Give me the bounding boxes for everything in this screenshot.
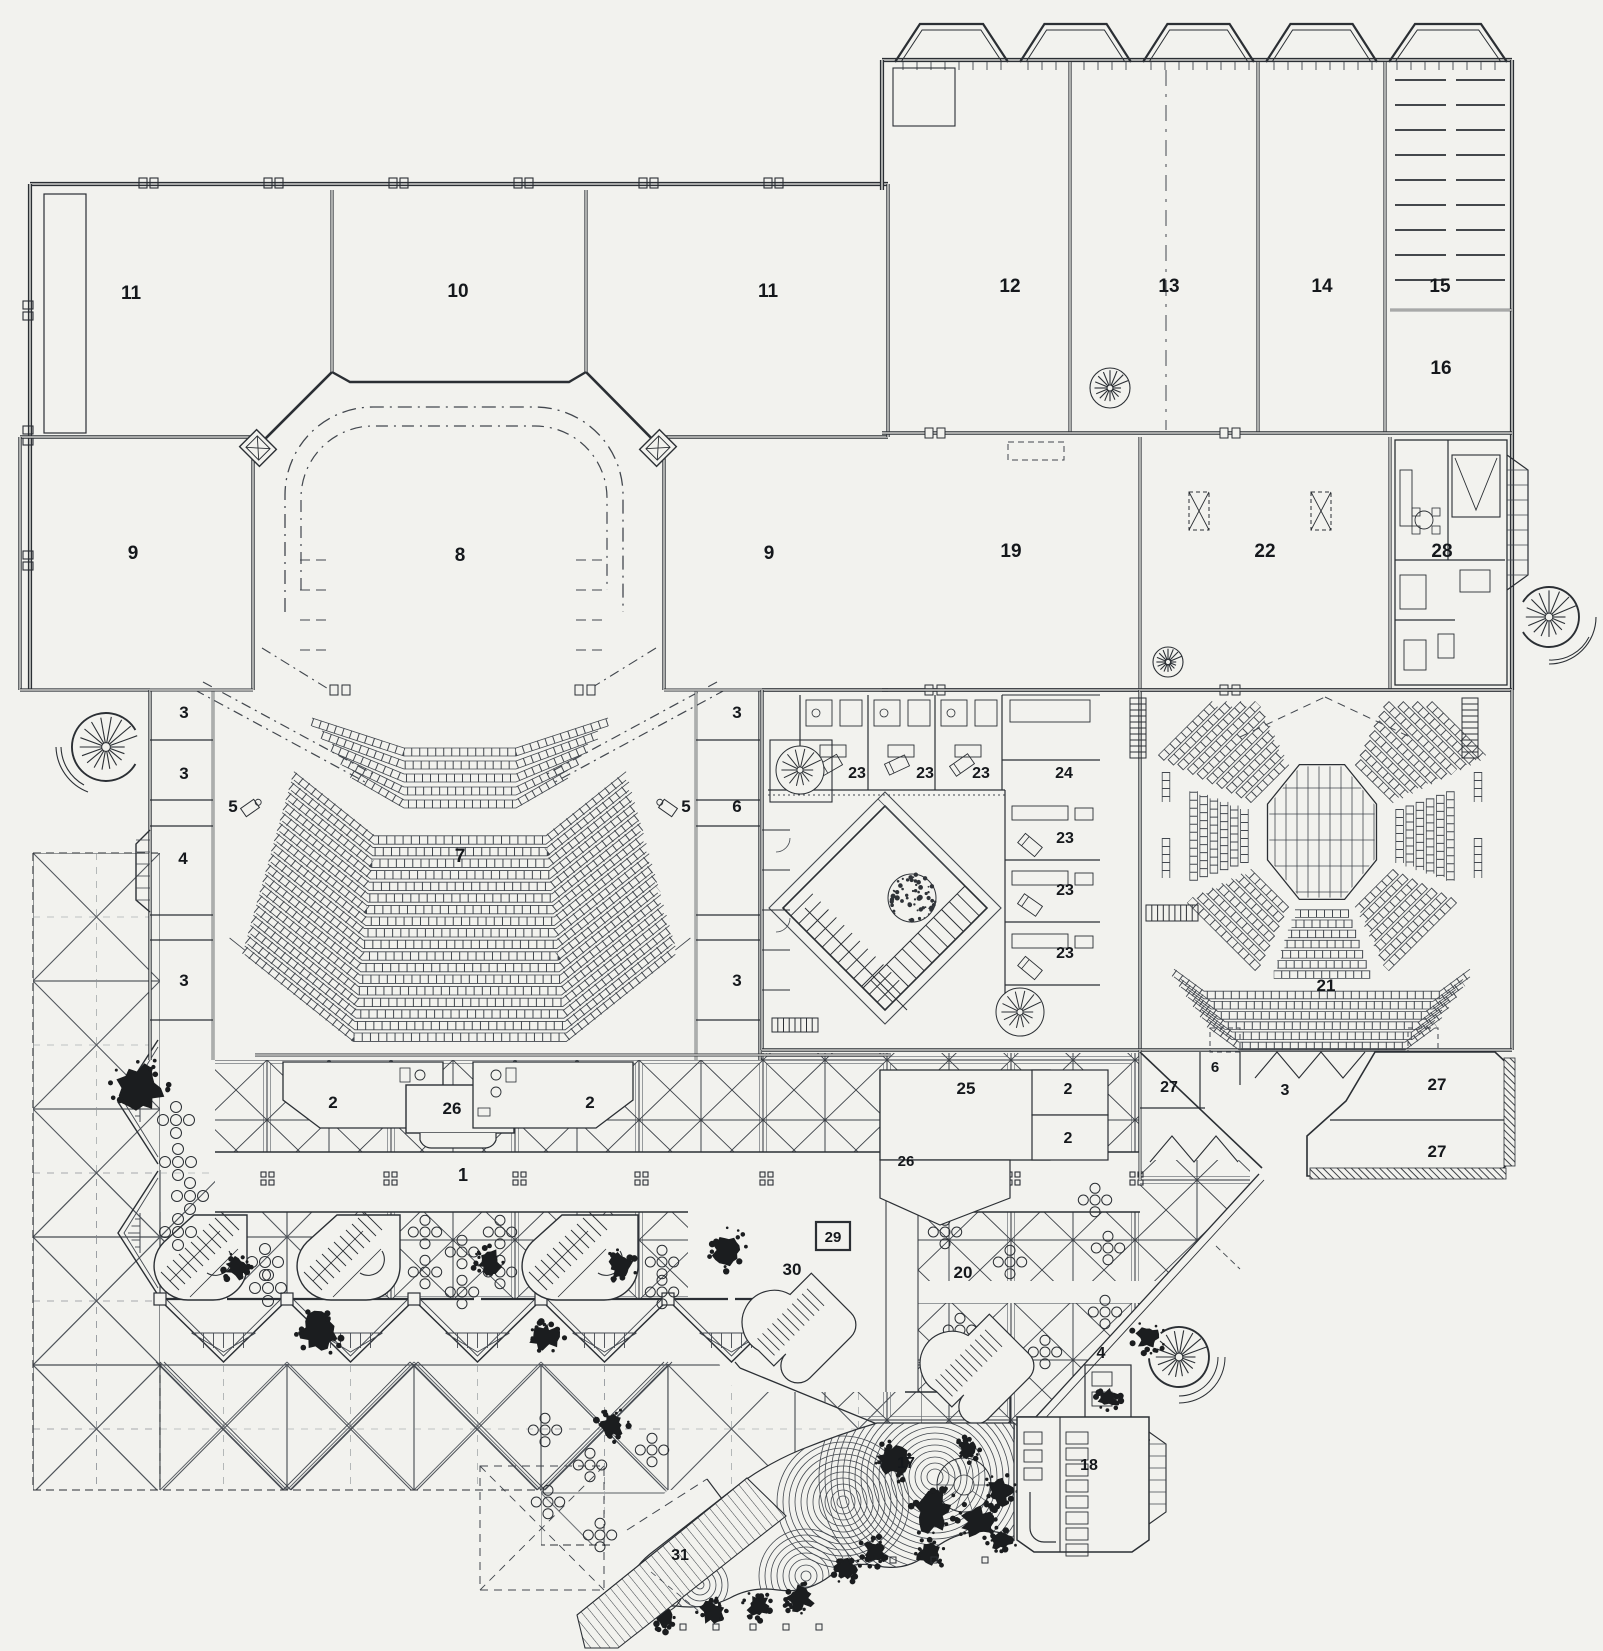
svg-text:5: 5 <box>228 797 237 816</box>
svg-text:13: 13 <box>1158 276 1179 297</box>
svg-text:30: 30 <box>783 1260 802 1279</box>
svg-text:23: 23 <box>916 765 934 782</box>
svg-text:27: 27 <box>1428 1142 1447 1161</box>
svg-text:16: 16 <box>1430 358 1451 379</box>
svg-text:3: 3 <box>732 703 741 722</box>
svg-text:28: 28 <box>1431 541 1452 562</box>
svg-text:17: 17 <box>897 1455 915 1472</box>
svg-text:21: 21 <box>1317 976 1336 995</box>
svg-text:3: 3 <box>179 764 188 783</box>
svg-text:10: 10 <box>447 281 468 302</box>
svg-text:3: 3 <box>179 703 188 722</box>
svg-text:19: 19 <box>1000 541 1021 562</box>
svg-text:29: 29 <box>825 1229 842 1246</box>
svg-text:2: 2 <box>328 1093 337 1112</box>
svg-text:3: 3 <box>179 971 188 990</box>
svg-text:11: 11 <box>121 283 142 304</box>
svg-text:3: 3 <box>732 971 741 990</box>
svg-text:9: 9 <box>128 543 139 564</box>
svg-text:2: 2 <box>1064 1081 1073 1098</box>
svg-text:1: 1 <box>458 1165 468 1185</box>
svg-text:2: 2 <box>585 1093 594 1112</box>
svg-text:23: 23 <box>972 765 990 782</box>
svg-text:27: 27 <box>1160 1079 1178 1096</box>
svg-text:25: 25 <box>957 1079 976 1098</box>
svg-text:4: 4 <box>178 849 188 868</box>
svg-text:14: 14 <box>1311 276 1333 297</box>
svg-text:23: 23 <box>848 765 866 782</box>
svg-text:23: 23 <box>1056 945 1074 962</box>
svg-text:18: 18 <box>1080 1457 1098 1474</box>
svg-text:3: 3 <box>1281 1082 1290 1099</box>
svg-text:5: 5 <box>681 797 690 816</box>
svg-text:31: 31 <box>671 1547 689 1564</box>
svg-text:12: 12 <box>999 276 1020 297</box>
svg-text:6: 6 <box>1211 1059 1219 1076</box>
svg-text:8: 8 <box>455 545 466 566</box>
svg-text:15: 15 <box>1429 276 1451 297</box>
svg-text:20: 20 <box>954 1263 973 1282</box>
svg-text:23: 23 <box>1056 830 1074 847</box>
svg-text:26: 26 <box>443 1099 462 1118</box>
svg-text:26: 26 <box>898 1153 915 1170</box>
svg-text:24: 24 <box>1055 765 1073 782</box>
svg-text:22: 22 <box>1254 541 1275 562</box>
svg-text:4: 4 <box>1097 1345 1106 1362</box>
svg-text:9: 9 <box>764 543 775 564</box>
svg-text:7: 7 <box>455 846 466 867</box>
svg-text:2: 2 <box>1064 1130 1073 1147</box>
svg-text:27: 27 <box>1428 1075 1447 1094</box>
svg-text:23: 23 <box>1056 882 1074 899</box>
svg-text:11: 11 <box>758 281 779 302</box>
svg-text:6: 6 <box>732 797 741 816</box>
